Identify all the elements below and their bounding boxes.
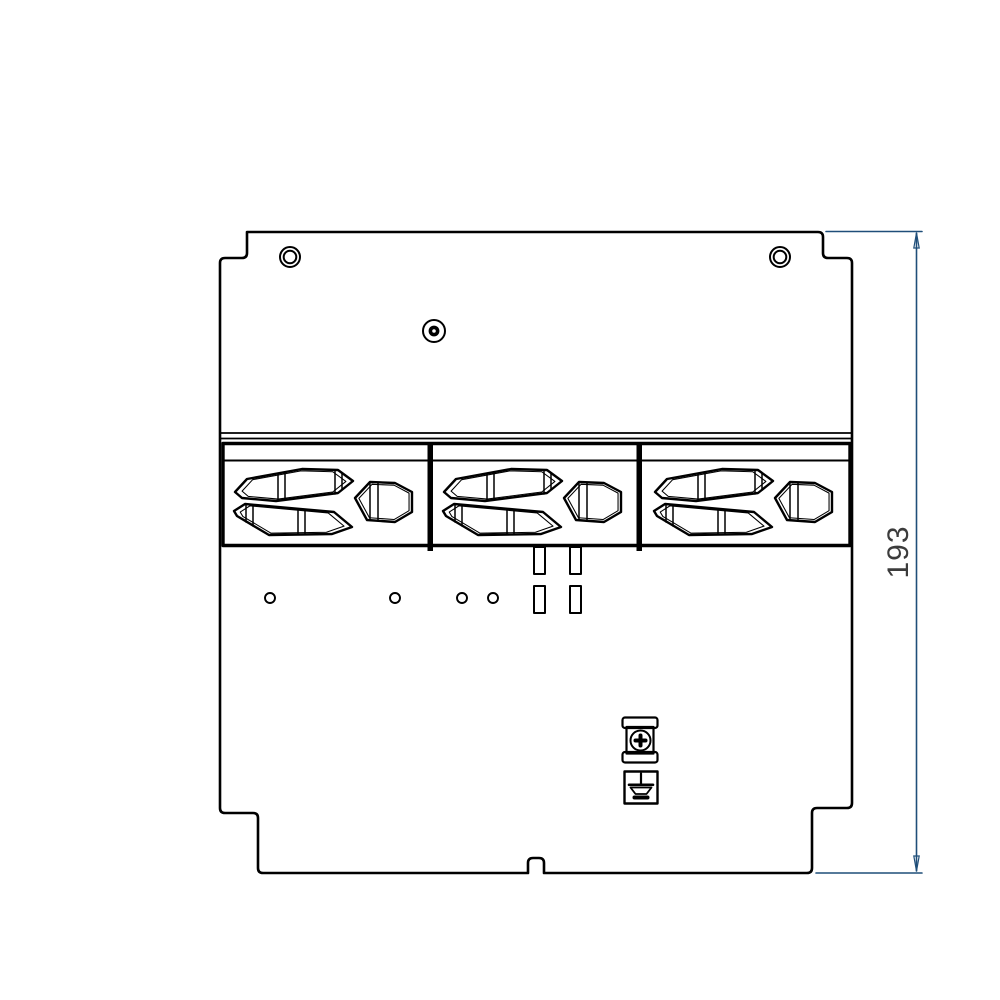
countersunk-hole xyxy=(423,320,445,342)
dimension-193: 193 xyxy=(816,232,922,874)
cable-slots xyxy=(534,547,581,613)
pilot-holes xyxy=(265,593,498,603)
dimension-value-label: 193 xyxy=(882,525,915,578)
plate-geometry xyxy=(220,232,852,873)
mounting-plate-outline xyxy=(220,232,852,873)
earth-screw-terminal xyxy=(623,718,658,763)
drawing-svg: 193 xyxy=(0,0,1000,1000)
earth-ground-symbol xyxy=(625,772,658,804)
connector-cutouts-block-1 xyxy=(234,469,412,535)
phillips-screw-icon xyxy=(636,736,646,746)
connector-cutouts-block-3 xyxy=(654,469,832,535)
screw-hole-right xyxy=(770,247,790,267)
band-divider-2-tab xyxy=(637,546,643,551)
screw-hole-left xyxy=(280,247,300,267)
technical-drawing-page: 193 xyxy=(0,0,1000,1000)
connector-cutouts-block-2 xyxy=(443,469,621,535)
band-divider-1 xyxy=(428,443,434,546)
band-divider-1-tab xyxy=(428,546,434,551)
band-divider-2 xyxy=(637,443,643,546)
